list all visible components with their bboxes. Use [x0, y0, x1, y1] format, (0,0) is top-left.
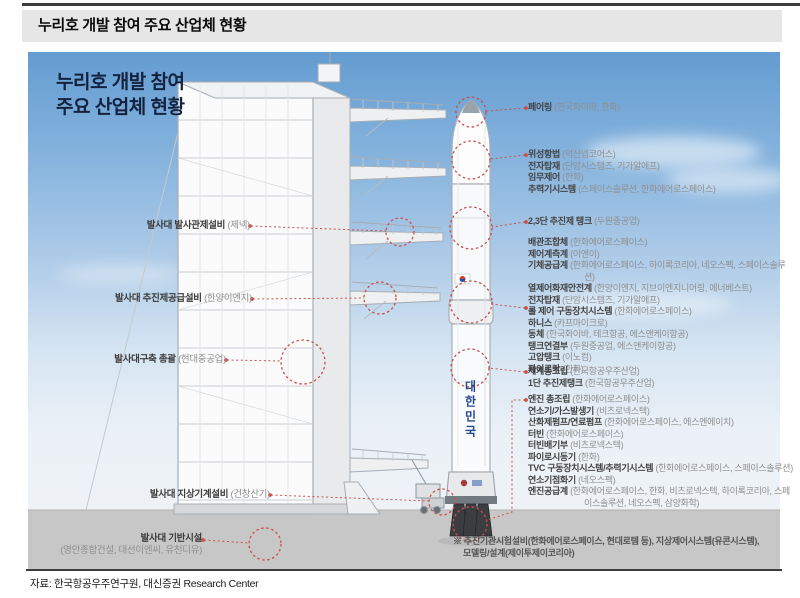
component-name: 제어계측계 [528, 249, 568, 259]
component-label: 2,3단 추진제 탱크 (두원중공업) [528, 216, 796, 228]
component-label: 열제어화재안전계 (한양이엔지, 지브이엔지니어링, 에너베스트) [528, 283, 796, 295]
component-label: 전자탑재 (단암시스템즈, 기가알에프) [528, 161, 796, 173]
component-company: (한국화이바, 테크항공, 에스앤케이항공) [544, 329, 688, 339]
infographic-title-line1: 누리호 개발 참여 [56, 70, 184, 95]
component-name: 롤 제어 구동장치시스템 [528, 306, 612, 316]
group-engine: 엔진 총조립 (한화에어로스페이스)연소기/가스발생기 (비츠로넥스텍)산화제펌… [528, 394, 796, 509]
component-label: 기체공급계 (한화에어로스페이스, 하이록코리아, 네오스펙, 스페이스솔루션) [528, 260, 796, 283]
component-label: 배관조합체 (한화에어로스페이스) [528, 237, 796, 249]
group-avionics: 위성항법 (덕산넵코어스)전자탑재 (단암시스템즈, 기가알에프)임무제어 (한… [528, 149, 796, 195]
component-label: 터빈배기부 (비츠로넥스텍) [528, 440, 796, 452]
component-name: 터빈 [528, 429, 544, 439]
component-label: 연소기/가스발생기 (비츠로넥스텍) [528, 406, 796, 418]
component-company: (한화에어로스페이스, 스페이스솔루션) [653, 463, 793, 473]
group-stage1: 체계총조립 (한국항공우주산업)1단 추진제탱크 (한국항공우주산업) [528, 366, 796, 389]
group-body-systems: 배관조합체 (한화에어로스페이스)제어계측계 (이앤이)기체공급계 (한화에어로… [528, 237, 796, 375]
component-label: 1단 추진제탱크 (한국항공우주산업) [528, 378, 796, 390]
component-company: (한국항공우주산업) [568, 366, 639, 376]
component-label: 엔진 총조립 (한화에어로스페이스) [528, 394, 796, 406]
footnote-line1: ※ 추진기관시험설비(한화에어로스페이스, 현대로템 등), 지상제어시스템(유… [453, 535, 793, 547]
component-label: 위성항법 (덕산넵코어스) [528, 149, 796, 161]
component-label: 롤 제어 구동장치시스템 (한화에어로스페이스) [528, 306, 796, 318]
component-label: 파이로시동기 (한화) [528, 452, 796, 464]
component-company: (한화에어로스페이스) [570, 394, 649, 404]
component-label: 고압탱크 (이노컴) [528, 352, 796, 364]
component-name: 엔진공급계 [528, 486, 568, 496]
source-credit: 자료: 한국항공우주연구원, 대신증권 Research Center [30, 576, 258, 591]
component-company: (한화에어로스페이스) [612, 306, 691, 316]
label-launch-control-facility: 발사대 발사관제설비 (제넥) [78, 220, 250, 232]
component-company: (한양이엔지, 지브이엔지니어링, 에너베스트) [592, 283, 752, 293]
component-name: 파이로시동기 [528, 452, 576, 462]
component-company: (한화에어로스페이스) [544, 429, 623, 439]
figure-title: 누리호 개발 참여 주요 산업체 현황 [22, 10, 782, 42]
component-company: (비츠로넥스텍) [594, 406, 649, 416]
component-label: 제어계측계 (이앤이) [528, 249, 796, 261]
component-label: 터빈 (한화에어로스페이스) [528, 429, 796, 441]
component-label: 동체 (한국화이바, 테크항공, 에스앤케이항공) [528, 329, 796, 341]
component-name: 추력기시스템 [528, 184, 576, 194]
group-fairing: 페어링 (한국화이바, 한화) [528, 102, 796, 114]
component-name: 위성항법 [528, 149, 560, 159]
component-company: (한화에어로스페이스) [568, 237, 647, 247]
component-company: (단암시스템즈, 기가알에프) [560, 161, 660, 171]
component-company: (덕산넵코어스) [560, 149, 615, 159]
component-company: (이노컴) [560, 352, 592, 362]
group-stage23-tank: 2,3단 추진제 탱크 (두원중공업) [528, 216, 796, 228]
label-propellant-supply-facility: 발사대 추진제공급설비 (한양이엔지) [60, 293, 252, 305]
component-label: 엔진공급계 (한화에어로스페이스, 한화, 비츠로넥스텍, 하이록코리아, 스페… [528, 486, 796, 509]
component-label: 산화제펌프/연료펌프 (한화에어로스페이스, 에스엔에이치) [528, 417, 796, 429]
component-label: 임무제어 (한화) [528, 172, 796, 184]
component-name: 2,3단 추진제 탱크 [528, 216, 592, 226]
component-label: 페어링 (한국화이바, 한화) [528, 102, 796, 114]
component-label: TVC 구동장치시스템/추력기시스템 (한화에어로스페이스, 스페이스솔루션) [528, 463, 796, 475]
report-figure: 누리호 개발 참여 주요 산업체 현황 [0, 0, 800, 598]
component-name: 전자탑재 [528, 161, 560, 171]
component-company: (한국항공우주산업) [583, 378, 654, 388]
component-label: 체계총조립 (한국항공우주산업) [528, 366, 796, 378]
component-company: (한화에어로스페이스, 에스엔에이치) [602, 417, 734, 427]
component-company: (카프마이크로) [552, 318, 607, 328]
label-ground-mechanical-facility: 발사대 지상기계설비 (건창산기) [78, 489, 270, 501]
component-name: 전자탑재 [528, 295, 560, 305]
bottom-divider [26, 569, 782, 571]
label-base-infrastructure: 발사대 기반시설(영안종합건설, 대선이엔씨, 유천디유) [30, 533, 202, 557]
component-name: 체계총조립 [528, 366, 568, 376]
service-arms [350, 99, 446, 472]
component-name: 기체공급계 [528, 260, 568, 270]
component-company: (한국화이바, 한화) [552, 102, 620, 112]
component-company: (비츠로넥스텍) [568, 440, 623, 450]
component-name: 열제어화재안전계 [528, 283, 592, 293]
infographic-canvas: 누리호 개발 참여 주요 산업체 현황 대한민국 발사대 발사관제설비 (제넥)… [28, 52, 780, 570]
component-company: (스페이스솔루션, 한화에어로스페이스) [576, 184, 716, 194]
component-label: 추력기시스템 (스페이스솔루션, 한화에어로스페이스) [528, 184, 796, 196]
component-company: (한화에어로스페이스, 하이록코리아, 네오스펙, 스페이스솔루션) [568, 260, 786, 282]
top-divider [22, 3, 800, 6]
component-label: 전자탑재 (단암시스템즈, 기가알에프) [528, 295, 796, 307]
component-name: 페어링 [528, 102, 552, 112]
component-name: 산화제펌프/연료펌프 [528, 417, 602, 427]
component-name: 고압탱크 [528, 352, 560, 362]
component-company: (두원중공업) [592, 216, 640, 226]
component-company: (한화에어로스페이스, 한화, 비츠로넥스텍, 하이록코리아, 스페이스솔루션,… [568, 486, 790, 508]
component-name: 연소기/가스발생기 [528, 406, 594, 416]
component-name: 임무제어 [528, 172, 560, 182]
component-company: (이앤이) [568, 249, 600, 259]
footnote: ※ 추진기관시험설비(한화에어로스페이스, 현대로템 등), 지상제어시스템(유… [453, 535, 793, 559]
label-launchpad-construction: 발사대구축 총괄 (현대중공업) [36, 354, 226, 366]
infographic-title: 누리호 개발 참여 주요 산업체 현황 [56, 70, 184, 120]
rocket-side-text: 대한민국 [462, 380, 479, 456]
component-name: 하니스 [528, 318, 552, 328]
footnote-line2: 모델링/설계(제이투제이코리아) [453, 547, 793, 559]
infographic-title-line2: 주요 산업체 현황 [56, 95, 184, 120]
component-name: 터빈배기부 [528, 440, 568, 450]
component-name: 1단 추진제탱크 [528, 378, 583, 388]
component-label: 하니스 (카프마이크로) [528, 318, 796, 330]
figure-title-bar: 누리호 개발 참여 주요 산업체 현황 [22, 10, 782, 42]
component-name: 엔진 총조립 [528, 394, 570, 404]
component-company: (한화) [576, 452, 600, 462]
component-company: (네오스펙) [576, 475, 616, 485]
component-label: 연소기점화기 (네오스펙) [528, 475, 796, 487]
component-name: 연소기점화기 [528, 475, 576, 485]
component-name: 탱크연결부 [528, 341, 568, 351]
component-name: 배관조합체 [528, 237, 568, 247]
component-company: (단암시스템즈, 기가알에프) [560, 295, 660, 305]
component-label: 탱크연결부 (두원중공업, 에스앤케이항공) [528, 341, 796, 353]
component-name: 동체 [528, 329, 544, 339]
component-company: (두원중공업, 에스앤케이항공) [568, 341, 676, 351]
korean-flag [455, 274, 470, 284]
component-name: TVC 구동장치시스템/추력기시스템 [528, 463, 653, 473]
component-company: (한화) [560, 172, 584, 182]
